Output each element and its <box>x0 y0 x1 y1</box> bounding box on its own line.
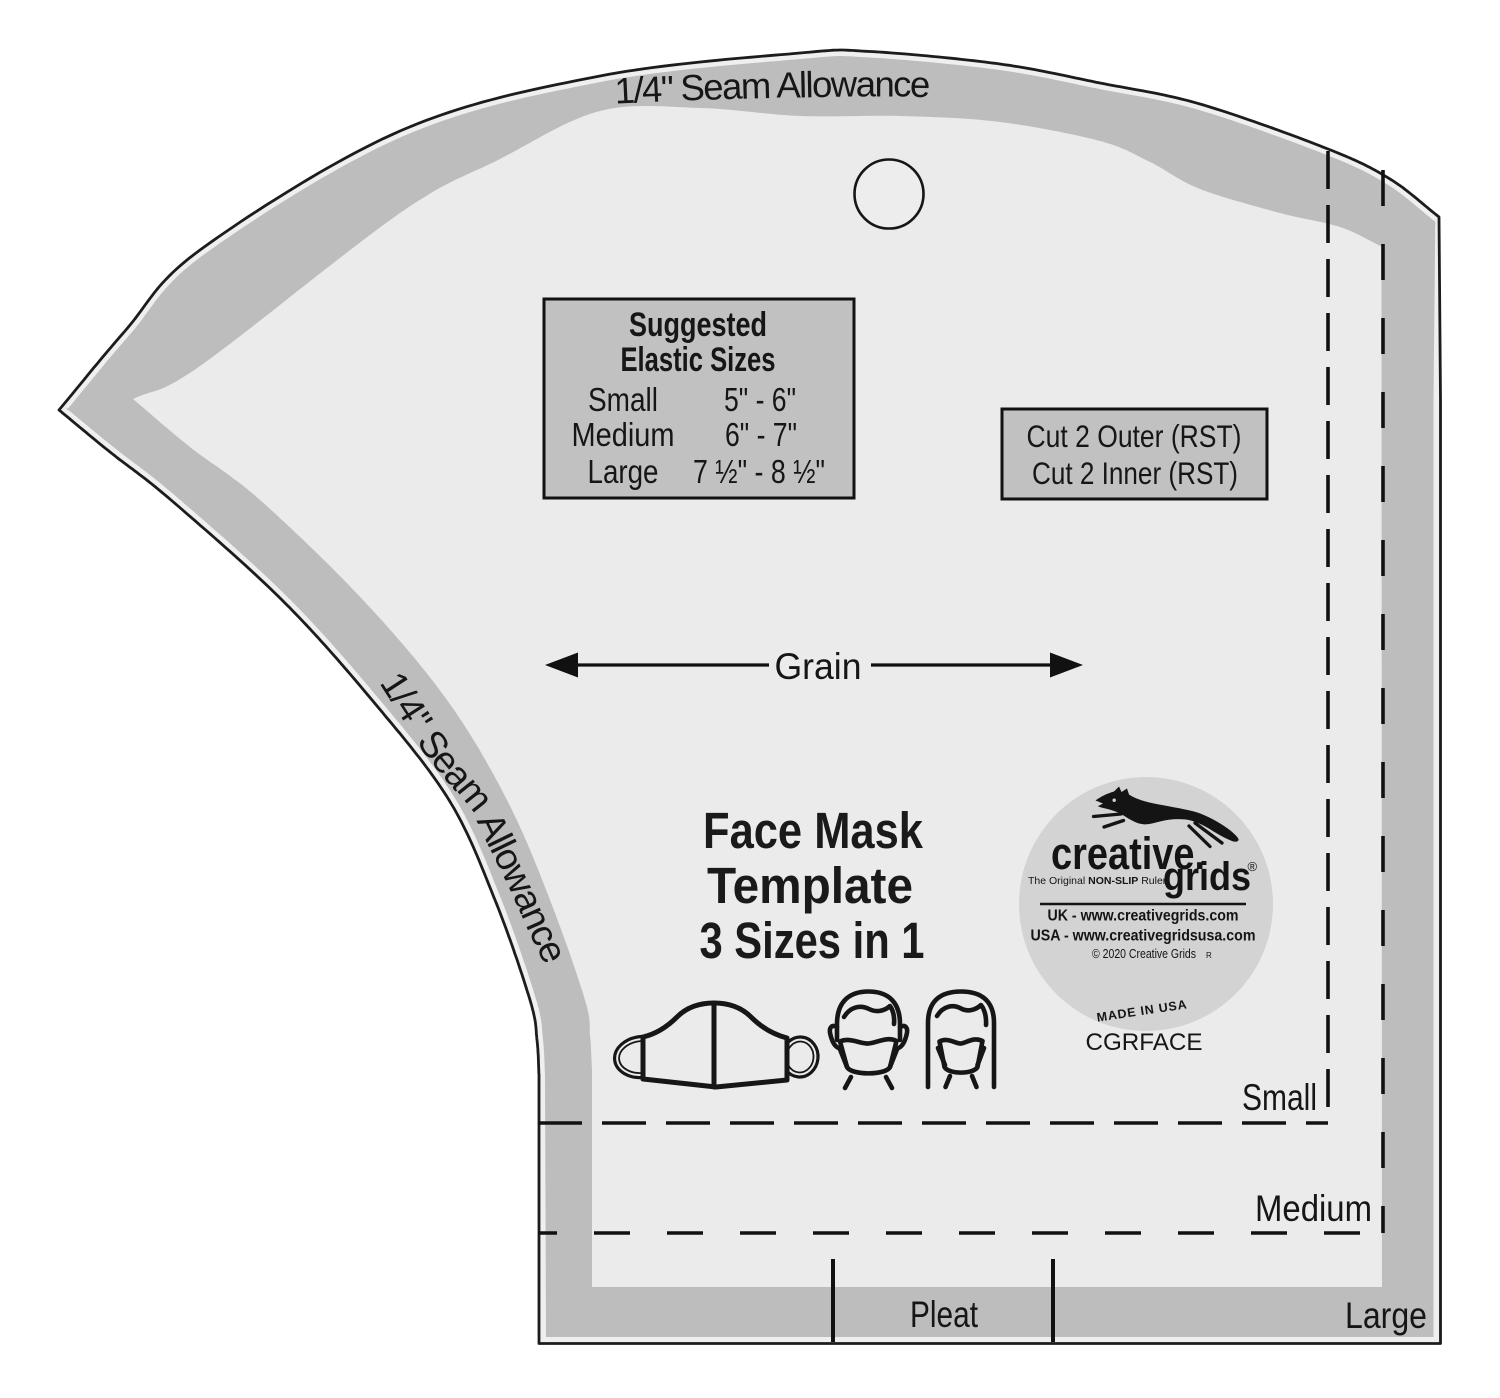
svg-text:© 2020 Creative Grids: © 2020 Creative Grids <box>1092 947 1196 961</box>
svg-text:7 ½" - 8 ½": 7 ½" - 8 ½" <box>693 453 825 490</box>
svg-text:R: R <box>1206 951 1212 960</box>
svg-text:UK - www.creativegrids.com: UK - www.creativegrids.com <box>1048 908 1239 925</box>
svg-text:Small: Small <box>588 381 658 418</box>
svg-text:Cut 2 Inner (RST): Cut 2 Inner (RST) <box>1032 455 1238 491</box>
svg-text:Small: Small <box>1242 1077 1317 1118</box>
svg-text:Medium: Medium <box>1255 1188 1372 1229</box>
svg-text:Face Mask: Face Mask <box>703 802 924 859</box>
svg-text:grids: grids <box>1163 855 1251 899</box>
svg-text:Large: Large <box>588 453 659 490</box>
svg-text:®: ® <box>1248 859 1258 874</box>
svg-text:CGRFACE: CGRFACE <box>1086 1029 1203 1056</box>
svg-text:Grain: Grain <box>775 646 862 687</box>
svg-text:Elastic Sizes: Elastic Sizes <box>621 341 776 379</box>
svg-text:6" - 7": 6" - 7" <box>725 416 797 453</box>
svg-text:USA - www.creativegridsusa.com: USA - www.creativegridsusa.com <box>1031 928 1256 945</box>
svg-text:Large: Large <box>1345 1295 1427 1336</box>
svg-text:The Original NON-SLIP Ruler: The Original NON-SLIP Ruler <box>1028 875 1167 887</box>
svg-text:Pleat: Pleat <box>910 1294 979 1335</box>
svg-text:3 Sizes in 1: 3 Sizes in 1 <box>700 912 925 969</box>
svg-text:Cut 2 Outer (RST): Cut 2 Outer (RST) <box>1027 418 1242 454</box>
svg-text:Suggested: Suggested <box>629 306 767 344</box>
svg-text:Medium: Medium <box>572 416 675 453</box>
svg-text:5" - 6": 5" - 6" <box>724 381 796 418</box>
svg-text:1/4" Seam Allowance: 1/4" Seam Allowance <box>614 63 930 111</box>
svg-text:Template: Template <box>707 857 913 914</box>
